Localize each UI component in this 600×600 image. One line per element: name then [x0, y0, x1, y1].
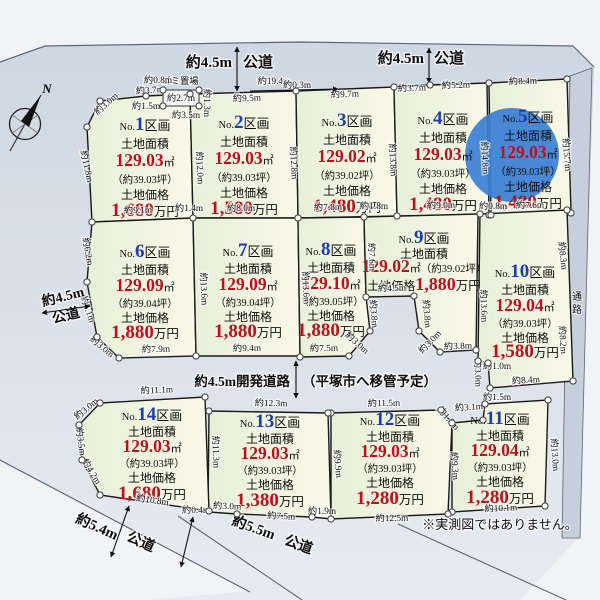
boundary-dot — [79, 457, 85, 463]
boundary-dot — [206, 508, 212, 514]
boundary-dot — [487, 385, 493, 391]
boundary-dot — [391, 84, 397, 90]
boundary-dot — [488, 212, 494, 218]
boundary-dot — [196, 103, 202, 109]
boundary-dot — [84, 124, 90, 130]
boundary-dot — [570, 378, 576, 384]
plot-10-tsubo: （約39.03坪） — [492, 317, 558, 330]
dimension-label-53: 約12.3m — [255, 397, 289, 410]
plot-2-tsubo: （約39.03坪） — [211, 171, 277, 184]
plot-4-tsubo: （約39.03坪） — [410, 167, 476, 180]
road-label-2: 約4.5m — [378, 49, 425, 67]
dimension-label-24: 約1.8m — [360, 200, 389, 212]
boundary-dot — [438, 407, 444, 413]
boundary-dot — [97, 98, 103, 104]
boundary-dot — [411, 293, 417, 299]
boundary-dot — [545, 397, 551, 403]
dimension-label-47: 約7.5m — [310, 342, 339, 355]
boundary-dot — [293, 88, 299, 94]
dimension-label-46: 約9.4m — [233, 342, 262, 355]
passage-label: 通 — [572, 291, 582, 303]
dimension-label-36: 約4.5m — [378, 282, 407, 295]
boundary-dot — [542, 503, 548, 509]
dimension-label-8: 約9.5m — [233, 91, 262, 104]
land-plot-map: ゴミ置場No.1区画土地面積129.03㎡（約39.03坪）土地価格1,680万… — [0, 0, 600, 600]
plot-7-tsubo: （約39.04坪） — [215, 296, 281, 309]
dimension-label-26: 約0.8m — [479, 200, 508, 212]
dimension-label-27: 約7.6m — [516, 199, 545, 212]
boundary-dot — [416, 328, 422, 334]
boundary-dot — [346, 353, 352, 359]
road-label-3: 公道 — [434, 49, 464, 67]
plot-1-tsubo: （約39.03坪） — [112, 173, 178, 186]
plot-3-area-label: 土地面積 — [323, 132, 371, 147]
boundary-dot — [116, 355, 122, 361]
boundary-dot — [84, 279, 90, 285]
boundary-dot — [187, 91, 193, 97]
dimension-label-3: 約3.5m — [172, 109, 201, 121]
boundary-dot — [97, 400, 103, 406]
dimension-label-12: 約5.2m — [442, 78, 471, 91]
boundary-dot — [193, 353, 199, 359]
plot-5-area-label: 土地面積 — [504, 128, 552, 143]
dimension-label-25: 約9.0m — [427, 199, 456, 212]
boundary-dot — [394, 213, 400, 219]
plot-map-svg: ゴミ置場No.1区画土地面積129.03㎡（約39.03坪）土地価格1,680万… — [0, 0, 600, 600]
dimension-label-4: 約1.3m — [201, 89, 213, 118]
road-label-1: 公道 — [243, 53, 273, 71]
plot-5-tsubo: （約39.03坪） — [495, 165, 561, 178]
boundary-dot — [482, 401, 488, 407]
boundary-dot — [97, 492, 103, 498]
boundary-dot — [206, 408, 212, 414]
not-surveyed-note: ※実測図ではありません。 — [422, 517, 578, 532]
boundary-dot — [473, 347, 479, 353]
dimension-label-22: 約8.0m — [227, 202, 256, 214]
boundary-dot — [190, 215, 196, 221]
plot-3-tsubo: （約39.02坪） — [314, 169, 380, 182]
dimension-label-0: 約0.8m — [144, 74, 173, 86]
plot-2-area-label: 土地面積 — [220, 134, 268, 149]
boundary-dot — [486, 80, 492, 86]
boundary-dot — [325, 410, 331, 416]
boundary-dot — [449, 420, 455, 426]
boundary-dot — [234, 511, 240, 517]
boundary-dot — [328, 516, 334, 522]
dimension-label-39: 約3.8m — [444, 339, 473, 352]
plot-11-tsubo: （約39.03坪） — [467, 461, 533, 474]
dimension-label-13: 約8.4m — [509, 74, 538, 87]
plot-4-area-label: 土地面積 — [419, 130, 467, 145]
road-label-0: 約4.5m — [186, 53, 233, 71]
boundary-dot — [143, 93, 149, 99]
compass-north-label: N — [41, 81, 52, 96]
dimension-label-7: 約1.5m — [132, 100, 161, 112]
boundary-dot — [564, 207, 570, 213]
boundary-dot — [437, 349, 443, 355]
road-label-7: （平塚市へ移管予定） — [302, 373, 437, 389]
boundary-dot — [367, 328, 373, 334]
plot-14-tsubo: （約39.03坪） — [119, 457, 185, 470]
dimension-label-21: 約1.4m — [175, 202, 204, 214]
boundary-dot — [89, 219, 95, 225]
dimension-label-11: 約3.7m — [398, 81, 427, 94]
boundary-dot — [309, 514, 315, 520]
boundary-dot — [427, 82, 433, 88]
dimension-label-20: 約9.1m — [124, 204, 153, 217]
boundary-dot — [477, 211, 483, 217]
dimension-label-54: 約11.5m — [368, 397, 401, 410]
plot-12-tsubo: （約39.03坪） — [357, 462, 423, 475]
dimension-label-23: 約7.8m — [314, 201, 343, 214]
boundary-dot — [564, 76, 570, 82]
boundary-dot — [485, 360, 491, 366]
road-label-6: 約4.5m開発道路 — [194, 373, 290, 389]
dimension-label-67: 約12.5m — [375, 512, 409, 525]
boundary-dot — [196, 87, 202, 93]
passage-label: 路 — [572, 303, 582, 316]
dimension-label-45: 約7.9m — [142, 343, 171, 356]
boundary-dot — [76, 422, 82, 428]
boundary-dot — [361, 214, 367, 220]
plot-13-tsubo: （約39.03坪） — [237, 464, 303, 477]
boundary-dot — [94, 334, 100, 340]
boundary-dot — [475, 358, 481, 364]
boundary-dot — [160, 87, 166, 93]
plot-1-area-label: 土地面積 — [121, 136, 169, 151]
boundary-dot — [295, 215, 301, 221]
boundary-dot — [363, 294, 369, 300]
boundary-dot — [297, 354, 303, 360]
boundary-dot — [160, 103, 166, 109]
boundary-dot — [480, 417, 486, 423]
plot-6-tsubo: （約39.04坪） — [112, 297, 178, 310]
boundary-dot — [202, 394, 208, 400]
